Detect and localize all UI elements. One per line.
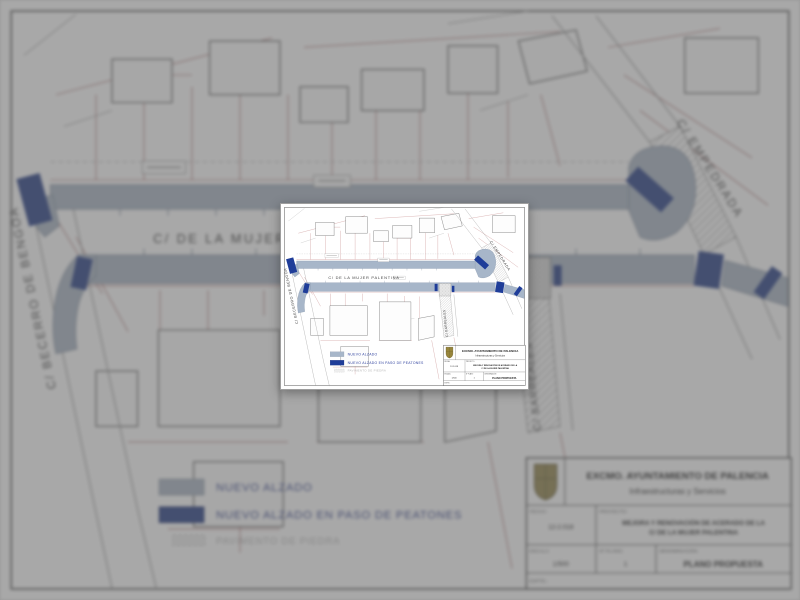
plan-popup-drawing: [281, 204, 528, 389]
plan-popup[interactable]: [280, 203, 529, 390]
viewer-stage: [0, 0, 800, 600]
